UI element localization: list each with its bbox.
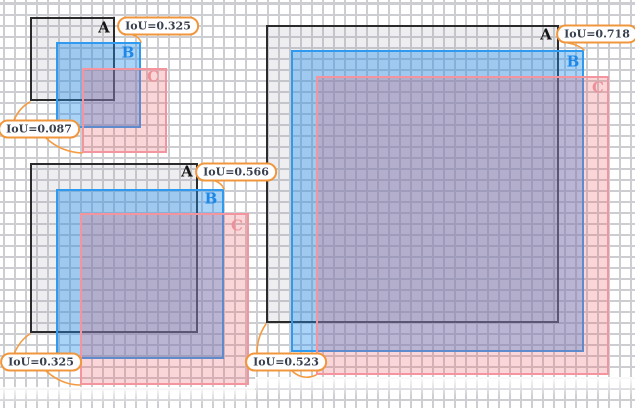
box-label-b: B (205, 192, 218, 207)
iou-badge: IoU=0.718 (556, 25, 635, 44)
box-label-a: A (540, 28, 552, 43)
leader-line (568, 43, 584, 50)
leader-line (46, 138, 82, 153)
leader-line (46, 371, 80, 385)
box-label-c: C (231, 219, 243, 234)
box-label-c: C (147, 70, 159, 85)
iou-diagram-canvas: ABCIoU=0.325IoU=0.087ABCIoU=0.566IoU=0.3… (0, 0, 635, 408)
box-label-b: B (122, 46, 135, 61)
box-c-large-example (316, 76, 609, 375)
iou-badge: IoU=0.523 (245, 353, 327, 372)
box-label-c: C (592, 81, 604, 96)
leader-line (133, 35, 141, 42)
leader-line (257, 324, 266, 353)
fade-glow (0, 387, 255, 404)
leader-line (14, 334, 30, 354)
iou-badge: IoU=0.325 (0, 353, 82, 372)
iou-badge: IoU=0.325 (117, 17, 199, 36)
box-label-b: B (567, 55, 580, 70)
iou-badge: IoU=0.087 (0, 120, 80, 139)
box-label-a: A (181, 165, 193, 180)
box-label-a: A (98, 21, 110, 36)
box-c-medium-example (80, 213, 249, 385)
fade-glow (255, 377, 635, 397)
iou-badge: IoU=0.566 (195, 163, 277, 182)
leader-line (14, 102, 30, 120)
